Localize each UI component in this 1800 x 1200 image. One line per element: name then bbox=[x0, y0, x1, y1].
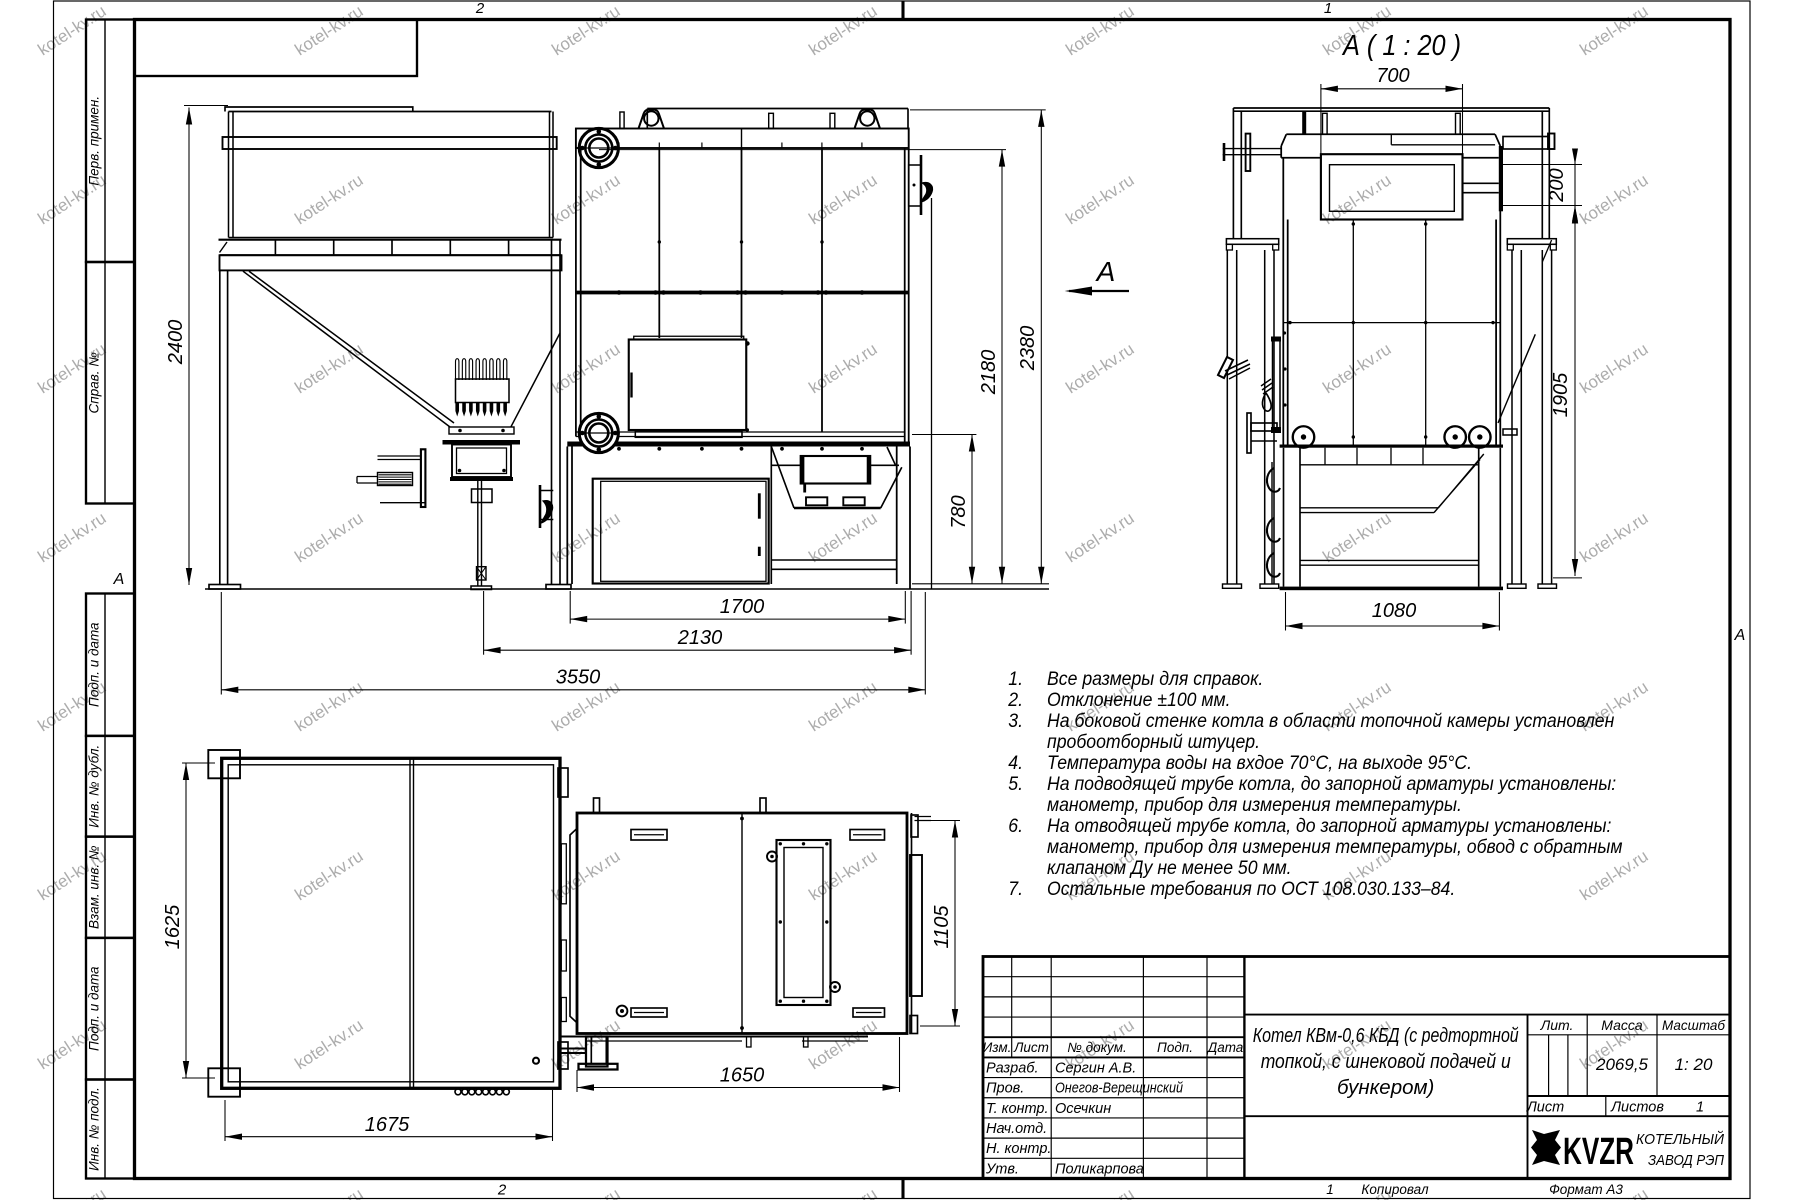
svg-text:Лист: Лист bbox=[1526, 1100, 1564, 1116]
svg-text:На боковой стенке котла в обла: На боковой стенке котла в области топочн… bbox=[1047, 709, 1614, 731]
svg-text:Утв.: Утв. bbox=[985, 1161, 1019, 1177]
svg-text:780: 780 bbox=[948, 495, 970, 528]
svg-text:Дата: Дата bbox=[1206, 1040, 1244, 1055]
svg-text:1650: 1650 bbox=[720, 1065, 765, 1087]
svg-text:А: А bbox=[113, 571, 125, 588]
svg-text:5.: 5. bbox=[1008, 772, 1023, 794]
svg-text:2130: 2130 bbox=[677, 627, 723, 649]
svg-text:Взам. инв. №: Взам. инв. № bbox=[87, 845, 102, 929]
svg-text:Инв. № дубл.: Инв. № дубл. bbox=[87, 745, 102, 828]
svg-text:Все размеры для справок.: Все размеры для справок. bbox=[1047, 667, 1263, 689]
svg-text:6.: 6. bbox=[1008, 814, 1023, 836]
svg-text:Отклонение ±100 мм.: Отклонение ±100 мм. bbox=[1047, 688, 1230, 710]
svg-text:1080: 1080 bbox=[1372, 600, 1417, 622]
svg-text:KVZR: KVZR bbox=[1563, 1131, 1634, 1173]
svg-text:КОТЕЛЬНЫЙ: КОТЕЛЬНЫЙ bbox=[1636, 1130, 1724, 1148]
svg-text:клапаном Ду не менее 50 мм.: клапаном Ду не менее 50 мм. bbox=[1047, 856, 1292, 878]
svg-text:Температура воды на вхдое 70°С: Температура воды на вхдое 70°С, на выход… bbox=[1047, 751, 1472, 773]
svg-text:2: 2 bbox=[497, 1182, 507, 1199]
svg-text:1: 1 bbox=[1324, 0, 1332, 17]
svg-text:Подп. и дата: Подп. и дата bbox=[87, 966, 102, 1051]
svg-text:2069,5: 2069,5 bbox=[1595, 1055, 1649, 1074]
svg-text:Онегов-Верещинский: Онегов-Верещинский bbox=[1055, 1081, 1183, 1097]
svg-text:2.: 2. bbox=[1007, 688, 1023, 710]
svg-text:топкой, с шнековой подачей и: топкой, с шнековой подачей и bbox=[1261, 1050, 1511, 1073]
svg-text:А: А bbox=[1095, 256, 1116, 287]
svg-text:манометр, прибор для измерения: манометр, прибор для измерения температу… bbox=[1047, 793, 1462, 815]
svg-text:А ( 1 : 20 ): А ( 1 : 20 ) bbox=[1341, 30, 1461, 62]
svg-text:№ докум.: № докум. bbox=[1067, 1040, 1126, 1055]
svg-text:манометр, прибор для измерения: манометр, прибор для измерения температу… bbox=[1047, 835, 1623, 857]
svg-text:Осечкин: Осечкин bbox=[1055, 1101, 1111, 1117]
svg-text:2380: 2380 bbox=[1017, 326, 1039, 372]
svg-text:Нач.отд.: Нач.отд. bbox=[986, 1121, 1047, 1137]
svg-text:Сергин А.В.: Сергин А.В. bbox=[1055, 1061, 1136, 1077]
svg-text:Листов: Листов bbox=[1610, 1100, 1664, 1116]
svg-text:2180: 2180 bbox=[978, 350, 1000, 396]
svg-text:1905: 1905 bbox=[1550, 372, 1572, 417]
svg-text:На отводящей трубе котла, до з: На отводящей трубе котла, до запорной ар… bbox=[1047, 814, 1611, 836]
svg-text:А: А bbox=[1734, 627, 1746, 644]
svg-text:Пров.: Пров. bbox=[986, 1081, 1024, 1097]
svg-text:3.: 3. bbox=[1008, 709, 1023, 731]
svg-text:Формат А3: Формат А3 bbox=[1549, 1182, 1623, 1197]
svg-text:Справ. №: Справ. № bbox=[87, 352, 102, 414]
svg-text:Подп. и дата: Подп. и дата bbox=[87, 622, 102, 707]
svg-text:Остальные требования по ОСТ 10: Остальные требования по ОСТ 108.030.133–… bbox=[1047, 877, 1455, 899]
svg-text:200: 200 bbox=[1546, 168, 1568, 202]
svg-text:Лист: Лист bbox=[1013, 1040, 1049, 1055]
svg-text:Масса: Масса bbox=[1601, 1017, 1643, 1033]
svg-text:Масштаб: Масштаб bbox=[1662, 1017, 1726, 1033]
svg-text:Копировал: Копировал bbox=[1361, 1182, 1429, 1197]
svg-text:1: 1 bbox=[1696, 1100, 1704, 1116]
svg-text:Т. контр.: Т. контр. bbox=[986, 1101, 1049, 1117]
svg-text:Разраб.: Разраб. bbox=[986, 1061, 1038, 1077]
svg-text:бункером): бункером) bbox=[1337, 1076, 1434, 1099]
svg-text:2: 2 bbox=[475, 0, 485, 17]
svg-text:Лит.: Лит. bbox=[1540, 1017, 1574, 1033]
svg-text:1625: 1625 bbox=[162, 904, 184, 949]
svg-text:1.: 1. bbox=[1008, 667, 1023, 689]
svg-text:пробоотборный штуцер.: пробоотборный штуцер. bbox=[1047, 730, 1260, 752]
svg-text:Изм.: Изм. bbox=[983, 1040, 1012, 1055]
svg-text:Н. контр.: Н. контр. bbox=[986, 1141, 1051, 1157]
svg-text:Подп.: Подп. bbox=[1157, 1040, 1193, 1055]
svg-text:ЗАВОД РЭП: ЗАВОД РЭП bbox=[1648, 1152, 1724, 1169]
svg-text:Перв. примен.: Перв. примен. bbox=[87, 96, 102, 186]
svg-text:3550: 3550 bbox=[556, 667, 601, 689]
svg-text:4.: 4. bbox=[1008, 751, 1023, 773]
svg-text:Котел КВм-0,6 КБД (с редтортно: Котел КВм-0,6 КБД (с редтортной bbox=[1253, 1024, 1519, 1047]
svg-text:Поликарпова: Поликарпова bbox=[1055, 1161, 1144, 1177]
svg-text:1: 1 bbox=[1326, 1182, 1334, 1197]
svg-text:На подводящей трубе котла, до: На подводящей трубе котла, до запорной а… bbox=[1047, 772, 1616, 794]
svg-text:2400: 2400 bbox=[165, 320, 187, 366]
svg-text:700: 700 bbox=[1376, 65, 1409, 87]
svg-text:1105: 1105 bbox=[931, 905, 953, 949]
svg-text:7.: 7. bbox=[1008, 877, 1023, 899]
svg-text:1675: 1675 bbox=[365, 1114, 410, 1136]
svg-text:1700: 1700 bbox=[720, 596, 765, 618]
svg-text:1: 20: 1: 20 bbox=[1675, 1055, 1713, 1074]
svg-text:Инв. № подл.: Инв. № подл. bbox=[87, 1087, 102, 1171]
